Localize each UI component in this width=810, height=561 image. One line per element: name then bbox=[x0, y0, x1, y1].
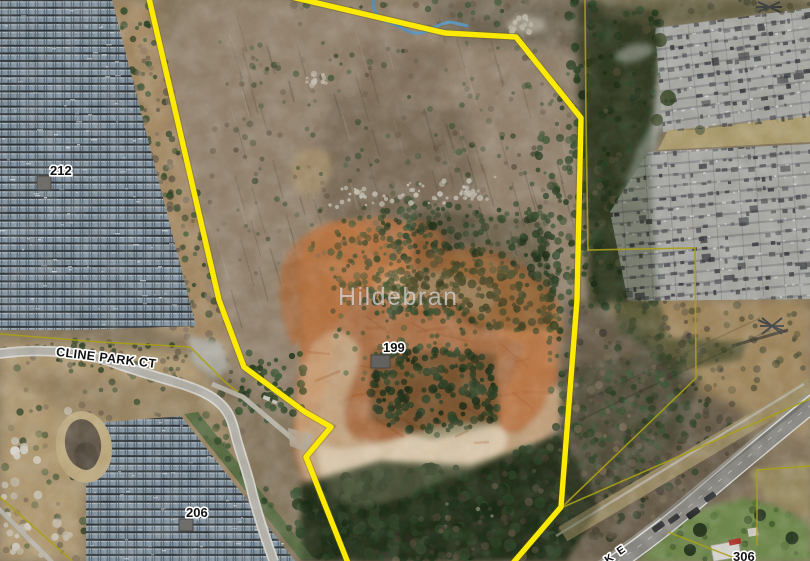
svg-text:Hildebran: Hildebran bbox=[338, 283, 459, 311]
svg-text:306: 306 bbox=[733, 549, 755, 561]
svg-text:212: 212 bbox=[50, 163, 72, 178]
svg-text:206: 206 bbox=[186, 505, 208, 520]
svg-text:199: 199 bbox=[383, 340, 405, 355]
